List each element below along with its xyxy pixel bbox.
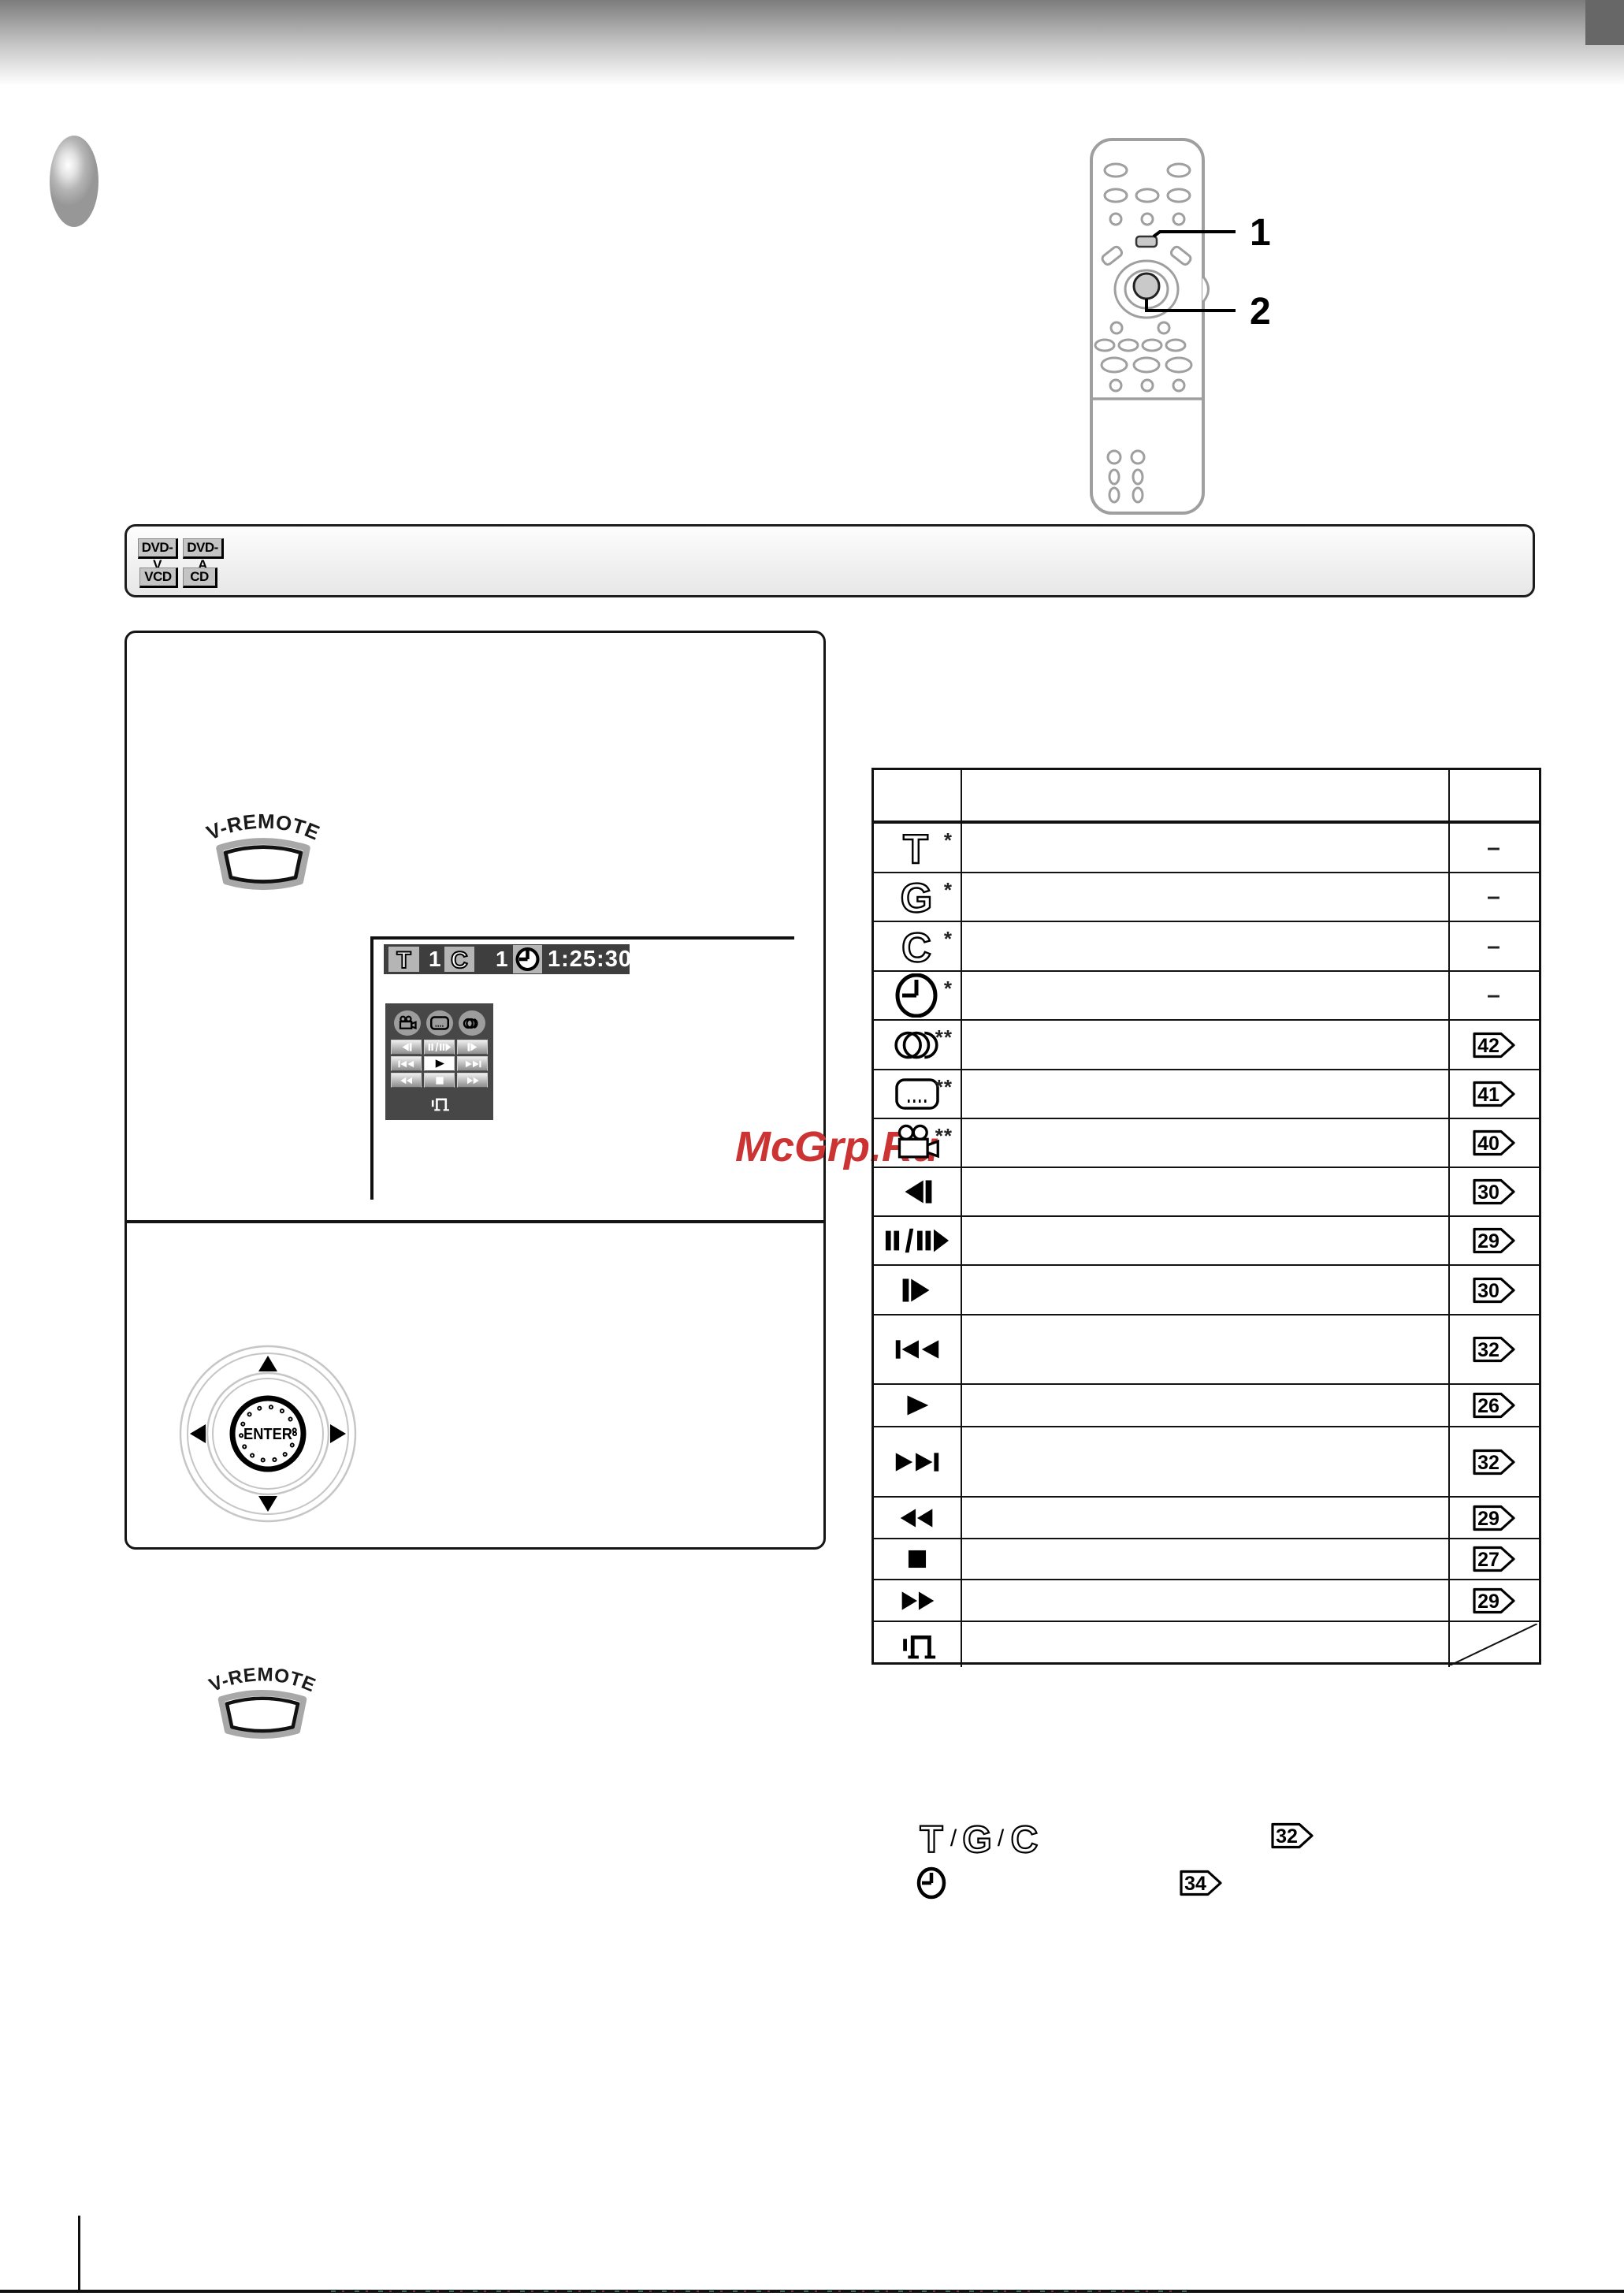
- panel-digest-icon: [428, 1094, 451, 1113]
- osd-chapter-letter: C: [451, 947, 468, 972]
- instruction-box-divider: [126, 1220, 824, 1223]
- table-row: 30: [874, 1266, 1539, 1315]
- table-row: 26: [874, 1385, 1539, 1427]
- svg-text:T: T: [903, 828, 928, 868]
- osd-chapter-box: C: [444, 947, 474, 972]
- no-page-dash: –: [1487, 933, 1500, 960]
- panel-skip-back-button: [391, 1056, 422, 1071]
- osd-time-box: [513, 945, 542, 973]
- svg-text:41: 41: [1477, 1084, 1500, 1106]
- footer-rule-artifacts: [331, 2290, 1190, 2292]
- header-description-cell: [962, 770, 1450, 821]
- table-row: T * –: [874, 824, 1539, 873]
- time-icon: [894, 973, 940, 1018]
- arrow-down-icon: [258, 1496, 277, 1512]
- table-row: * –: [874, 972, 1539, 1021]
- table-row: C * –: [874, 922, 1539, 972]
- page-badge: 27: [1472, 1546, 1516, 1572]
- osd-status-bar: T 1 C 1 1:25:30: [384, 944, 630, 974]
- stop-icon: [904, 1546, 931, 1572]
- footer-ref-line1-icons: T / G / C: [914, 1818, 1056, 1859]
- page-badge: 29: [1472, 1505, 1516, 1531]
- page-badge: 30: [1472, 1178, 1516, 1205]
- arrow-right-icon: [330, 1424, 346, 1443]
- panel-play-button: [424, 1056, 455, 1071]
- svg-text:32: 32: [1276, 1825, 1298, 1848]
- manual-page: 1 2 DVD-V DVD-A VCD CD V-REMOTE T 1 C 1: [0, 0, 1624, 2296]
- svg-text:26: 26: [1477, 1395, 1500, 1417]
- osd-time-value: 1:25:30: [548, 945, 632, 973]
- step-forward-icon: [893, 1273, 942, 1308]
- svg-text:32: 32: [1477, 1452, 1500, 1474]
- page-badge: 32: [1472, 1449, 1516, 1475]
- chapter-icon: C: [895, 926, 939, 967]
- osd-clock-icon: [513, 945, 542, 973]
- play-icon: [897, 1390, 937, 1421]
- remote-control-illustration: 1 2: [1078, 134, 1275, 528]
- table-row: 30: [874, 1168, 1539, 1217]
- badge-dvd-v: DVD-V: [138, 538, 178, 559]
- title-icon: T: [920, 1819, 942, 1859]
- group-icon: G: [895, 876, 939, 917]
- table-row: [874, 1622, 1539, 1667]
- svg-text:/: /: [950, 1825, 957, 1851]
- step-reverse-icon: [893, 1174, 942, 1209]
- osd-callout-rule-horizontal: [370, 936, 794, 940]
- header-corner-square: [1585, 0, 1624, 45]
- angle-icon: [894, 1124, 941, 1162]
- callout-2-label: 2: [1250, 291, 1271, 333]
- disc-compatibility-panel: DVD-V DVD-A VCD CD: [124, 524, 1535, 597]
- svg-text:30: 30: [1477, 1280, 1500, 1302]
- table-row: ** 41: [874, 1070, 1539, 1119]
- header-page-cell: [1450, 770, 1537, 821]
- osd-chapter-number: 1: [496, 946, 508, 973]
- osd-control-panel: [385, 1003, 493, 1120]
- svg-text:34: 34: [1184, 1873, 1206, 1895]
- footer-page-badge-1: 32: [1270, 1822, 1314, 1849]
- panel-step-reverse-button: [391, 1040, 422, 1055]
- panel-audio-icon: [459, 1010, 485, 1036]
- svg-text:30: 30: [1477, 1181, 1500, 1204]
- no-page-dash: –: [1487, 835, 1500, 861]
- diagonal-empty-cell: [1450, 1624, 1537, 1665]
- table-row: 32: [874, 1315, 1539, 1385]
- time-icon: [916, 1866, 947, 1900]
- page-badge: 40: [1472, 1129, 1516, 1156]
- table-row: 29: [874, 1498, 1539, 1539]
- table-row: G * –: [874, 873, 1539, 922]
- table-row: 29: [874, 1217, 1539, 1266]
- osd-callout-rule-vertical: [370, 936, 373, 1200]
- page-badge: 32: [1472, 1336, 1516, 1363]
- v-remote-button-inner: [225, 847, 301, 882]
- svg-text:G: G: [901, 876, 932, 917]
- table-row: ** 40: [874, 1119, 1539, 1168]
- badge-vcd: VCD: [139, 567, 178, 588]
- no-page-dash: –: [1487, 982, 1500, 1009]
- page-badge: 30: [1472, 1277, 1516, 1304]
- v-remote-button-illustration-1: V-REMOTE: [195, 791, 331, 906]
- svg-text:29: 29: [1477, 1591, 1500, 1613]
- page-badge: 29: [1472, 1227, 1516, 1254]
- chapter-icon: C: [1011, 1819, 1039, 1859]
- panel-rewind-button: [391, 1073, 422, 1088]
- badge-dvd-a: DVD-A: [183, 538, 224, 559]
- panel-fast-forward-button: [457, 1073, 488, 1088]
- v-remote-key-on-remote: [1136, 236, 1157, 247]
- header-icon-cell: [874, 770, 962, 821]
- v-remote-button-illustration-2: V-REMOTE: [199, 1654, 326, 1747]
- table-row: 29: [874, 1580, 1539, 1622]
- table-row: ** 42: [874, 1021, 1539, 1070]
- arrow-left-icon: [190, 1424, 206, 1443]
- page-badge: 26: [1472, 1392, 1516, 1419]
- nav-pad-illustration: ENTER: [178, 1344, 358, 1524]
- page-badge: 29: [1472, 1587, 1516, 1614]
- osd-title-letter: T: [396, 947, 411, 972]
- button-reference-table: T * – G * – C * –: [871, 768, 1541, 1665]
- group-icon: G: [962, 1819, 991, 1859]
- svg-text:40: 40: [1477, 1133, 1500, 1155]
- footer-page-badge-2: 34: [1179, 1870, 1223, 1896]
- enter-label: ENTER: [243, 1426, 292, 1443]
- badge-cd: CD: [183, 567, 217, 588]
- svg-text:C: C: [901, 926, 931, 967]
- panel-skip-forward-button: [457, 1056, 488, 1071]
- section-sphere-bullet: [50, 136, 98, 227]
- svg-text:29: 29: [1477, 1508, 1500, 1530]
- page-badge: 41: [1472, 1081, 1516, 1107]
- no-page-dash: –: [1487, 884, 1500, 910]
- svg-text:32: 32: [1477, 1339, 1500, 1361]
- panel-pause-slow-button: [424, 1040, 455, 1055]
- panel-stop-button: [424, 1073, 455, 1088]
- subtitle-icon: [894, 1077, 940, 1111]
- panel-subtitle-icon: [426, 1010, 453, 1036]
- footer-left-tick: [78, 2216, 80, 2290]
- svg-text:29: 29: [1477, 1230, 1500, 1252]
- rewind-icon: [894, 1502, 940, 1534]
- page-badge: 42: [1472, 1032, 1516, 1059]
- callout-1-label: 1: [1250, 212, 1271, 254]
- enter-key-on-remote: [1134, 274, 1159, 299]
- osd-title-number: 1: [429, 946, 441, 973]
- svg-text:42: 42: [1477, 1035, 1500, 1057]
- panel-step-forward-button: [457, 1040, 488, 1055]
- fast-forward-icon: [894, 1585, 940, 1617]
- svg-text:/: /: [998, 1825, 1005, 1851]
- pause-slow-icon: [881, 1224, 953, 1257]
- table-header-row: [874, 770, 1539, 824]
- skip-forward-icon: [890, 1446, 945, 1478]
- title-icon: T: [895, 828, 939, 868]
- skip-back-icon: [890, 1334, 945, 1365]
- osd-title-box: T: [388, 947, 419, 972]
- header-gradient-bar: [0, 0, 1624, 85]
- svg-text:27: 27: [1477, 1549, 1500, 1571]
- table-row: 27: [874, 1539, 1539, 1580]
- table-row: 32: [874, 1427, 1539, 1498]
- arrow-up-icon: [258, 1356, 277, 1371]
- digest-icon: [896, 1628, 938, 1662]
- panel-angle-icon: [394, 1010, 421, 1036]
